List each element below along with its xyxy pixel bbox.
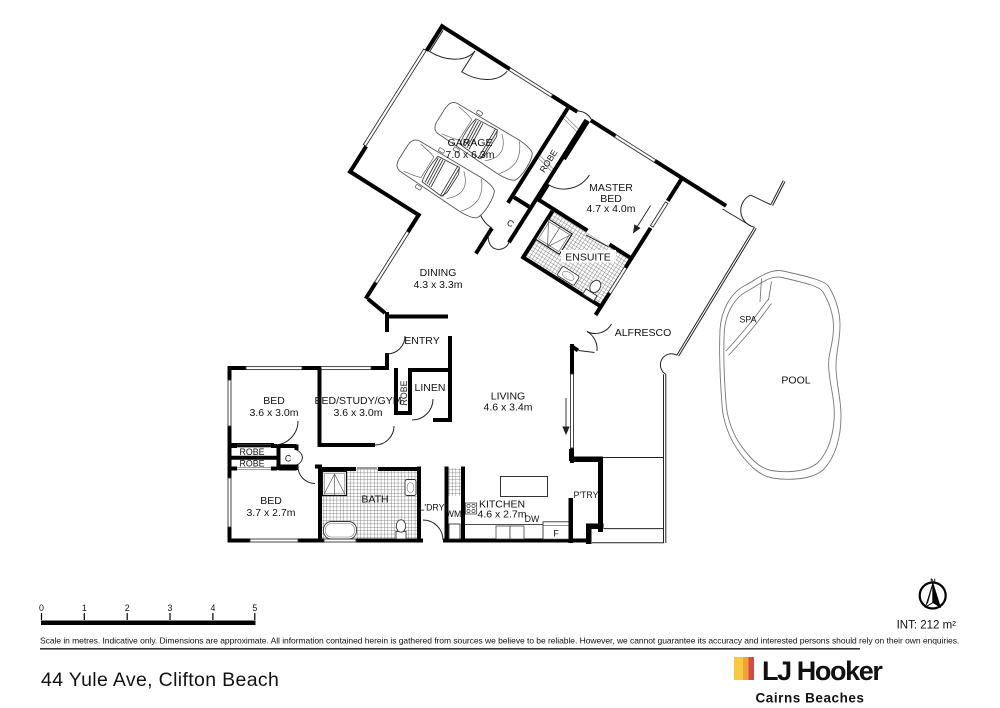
svg-text:DW: DW (525, 514, 540, 524)
svg-text:SPA: SPA (740, 315, 757, 325)
svg-text:N: N (930, 577, 935, 586)
svg-text:4.3 x 3.3m: 4.3 x 3.3m (413, 279, 462, 291)
svg-text:4.6 x 2.7m: 4.6 x 2.7m (477, 509, 526, 521)
svg-text:0: 0 (39, 603, 44, 613)
svg-text:C: C (285, 454, 292, 464)
svg-text:BED: BED (260, 495, 282, 507)
svg-text:Scale in metres. Indicative on: Scale in metres. Indicative only. Dimens… (40, 636, 959, 646)
svg-text:POOL: POOL (781, 375, 810, 387)
svg-text:3.6 x 3.0m: 3.6 x 3.0m (333, 407, 382, 419)
svg-text:4.7 x 4.0m: 4.7 x 4.0m (586, 203, 635, 215)
svg-text:BED/STUDY/GYM: BED/STUDY/GYM (315, 395, 402, 407)
svg-text:ROBE: ROBE (240, 459, 265, 469)
svg-text:WM: WM (446, 509, 462, 519)
svg-text:4.6 x 3.4m: 4.6 x 3.4m (483, 402, 532, 414)
svg-text:3: 3 (168, 603, 173, 613)
svg-text:3.6 x 3.0m: 3.6 x 3.0m (249, 407, 298, 419)
svg-text:2: 2 (125, 603, 130, 613)
svg-text:5: 5 (252, 603, 257, 613)
svg-text:Cairns Beaches: Cairns Beaches (755, 691, 864, 706)
svg-text:P'TRY: P'TRY (574, 490, 599, 500)
svg-text:BED: BED (263, 395, 285, 407)
svg-text:ENSUITE: ENSUITE (565, 252, 611, 264)
svg-text:BATH: BATH (361, 494, 388, 506)
svg-text:ENTRY: ENTRY (404, 335, 439, 347)
svg-text:F: F (553, 529, 559, 539)
svg-text:1: 1 (82, 603, 87, 613)
svg-text:DINING: DINING (420, 267, 457, 279)
svg-text:3.7 x 2.7m: 3.7 x 2.7m (246, 507, 295, 519)
svg-text:LINEN: LINEN (415, 382, 446, 394)
svg-text:GARAGE: GARAGE (448, 137, 493, 149)
svg-text:4: 4 (210, 603, 215, 613)
svg-text:INT: 212 m²: INT: 212 m² (897, 620, 957, 632)
svg-text:7.0 x 6.3m: 7.0 x 6.3m (445, 149, 494, 161)
svg-text:44 Yule Ave, Clifton Beach: 44 Yule Ave, Clifton Beach (41, 669, 279, 691)
svg-text:ROBE: ROBE (240, 447, 265, 457)
svg-text:L'DRY: L'DRY (420, 503, 445, 513)
svg-text:LJ Hooker: LJ Hooker (762, 656, 883, 686)
svg-text:ALFRESCO: ALFRESCO (615, 327, 672, 339)
svg-text:ROBE: ROBE (399, 380, 409, 405)
